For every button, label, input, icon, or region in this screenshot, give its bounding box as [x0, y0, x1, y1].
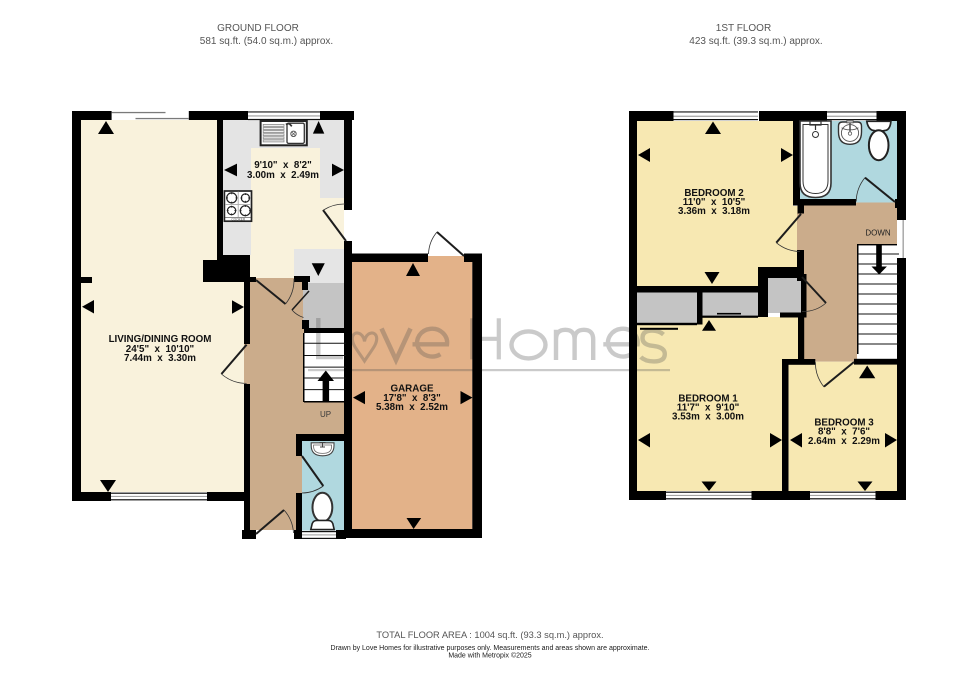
svg-text:3.36m x 3.18m: 3.36m x 3.18m [678, 206, 750, 217]
svg-text:GROUND FLOOR: GROUND FLOOR [217, 23, 299, 34]
svg-text:DOWN: DOWN [865, 229, 891, 238]
svg-text:3.00m x 2.49m: 3.00m x 2.49m [247, 170, 319, 181]
svg-text:2.64m x 2.29m: 2.64m x 2.29m [808, 436, 880, 447]
svg-text:1ST FLOOR: 1ST FLOOR [716, 23, 771, 34]
svg-text:581 sq.ft. (54.0 sq.m.) approx: 581 sq.ft. (54.0 sq.m.) approx. [200, 36, 333, 47]
svg-text:3.53m x 3.00m: 3.53m x 3.00m [672, 412, 744, 423]
svg-text:423 sq.ft. (39.3 sq.m.) approx: 423 sq.ft. (39.3 sq.m.) approx. [689, 36, 822, 47]
svg-text:COOKER: COOKER [231, 218, 246, 222]
svg-text:Drawn by Love Homes for illust: Drawn by Love Homes for illustrative pur… [331, 645, 650, 652]
svg-text:5.38m x 2.52m: 5.38m x 2.52m [376, 402, 448, 413]
svg-text:Made with Metropix ©2025: Made with Metropix ©2025 [448, 652, 531, 660]
svg-text:TOTAL FLOOR AREA : 1004 sq.ft.: TOTAL FLOOR AREA : 1004 sq.ft. (93.3 sq.… [376, 630, 603, 640]
svg-text:7.44m x 3.30m: 7.44m x 3.30m [124, 353, 196, 364]
svg-text:UP: UP [320, 410, 331, 419]
